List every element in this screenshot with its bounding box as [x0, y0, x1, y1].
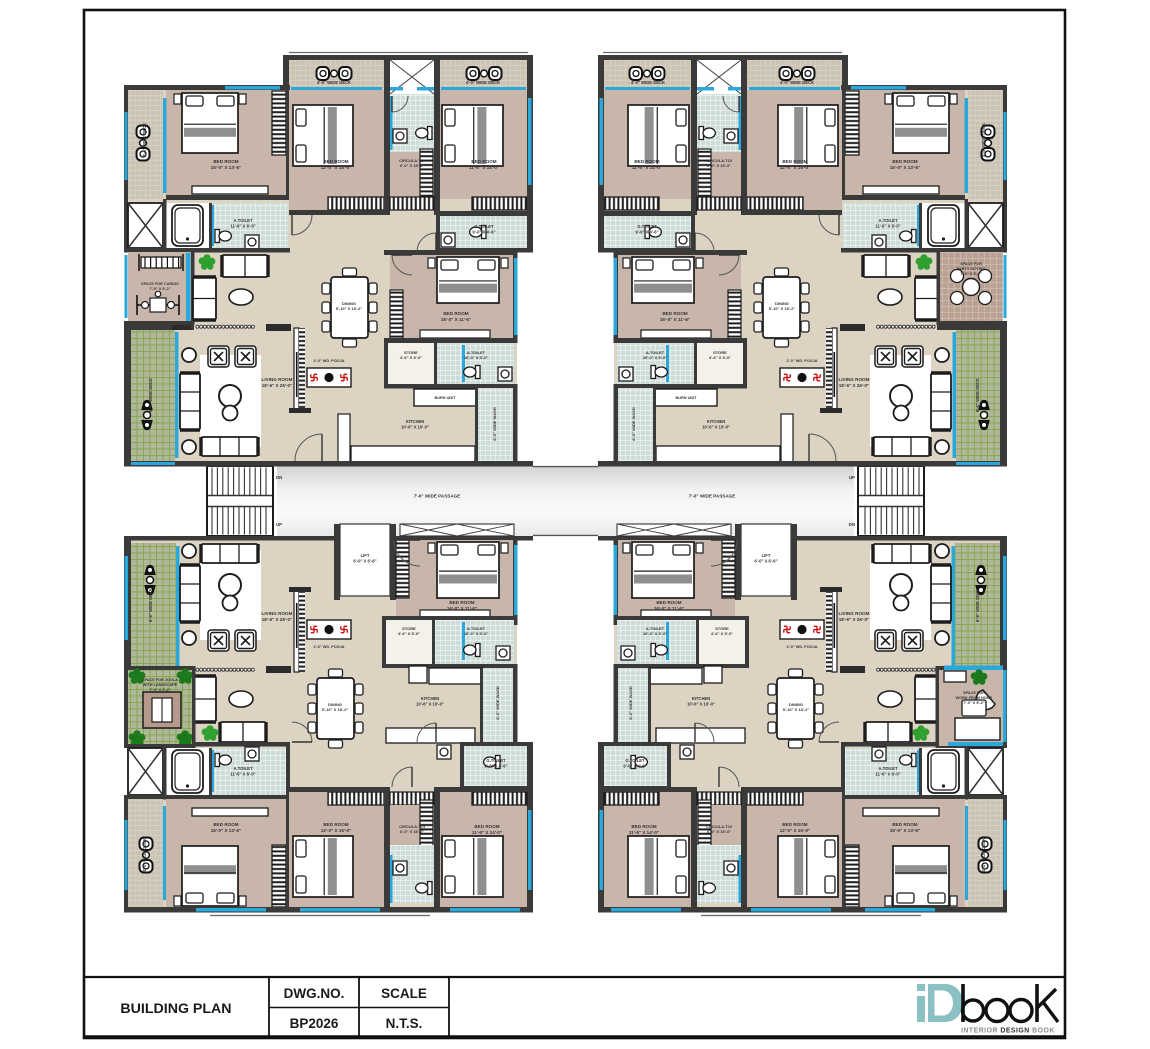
svg-text:A.TOILET10'-0" X 5'-0": A.TOILET10'-0" X 5'-0"	[643, 350, 667, 360]
svg-text:4'-0" WIDE DECK: 4'-0" WIDE DECK	[780, 80, 814, 85]
svg-text:7'-6" WIDE PASSAGE: 7'-6" WIDE PASSAGE	[414, 494, 461, 499]
svg-text:4'-0" WIDE DECK: 4'-0" WIDE DECK	[631, 80, 665, 85]
svg-text:A.TOILET11'-6" X 6'-0": A.TOILET11'-6" X 6'-0"	[875, 218, 900, 228]
svg-text:4'-4" WIDE DECK: 4'-4" WIDE DECK	[142, 123, 147, 157]
svg-text:G.TOILET9'-0" X 4'-6": G.TOILET9'-0" X 4'-6"	[472, 224, 495, 234]
svg-text:BURN UNIT: BURN UNIT	[435, 396, 457, 400]
svg-text:BED ROOM12'-0" X 15'-0": BED ROOM12'-0" X 15'-0"	[321, 159, 352, 170]
svg-text:UP: UP	[849, 475, 855, 480]
svg-text:G.TOILET9'-0" X 4'-6": G.TOILET9'-0" X 4'-6"	[484, 758, 507, 768]
svg-text:6'-0" WIDE WASH: 6'-0" WIDE WASH	[492, 407, 497, 440]
svg-text:SPACE FORPARTY SITTING7'-9" X: SPACE FORPARTY SITTING7'-9" X 9'-2"	[957, 262, 986, 276]
svg-text:BED ROOM11'-6" X 14'-0": BED ROOM11'-6" X 14'-0"	[632, 159, 662, 170]
svg-text:BED ROOM15'-0" X 13'-6": BED ROOM15'-0" X 13'-6"	[211, 159, 242, 170]
svg-text:BED ROOM11'-6" X 14'-0": BED ROOM11'-6" X 14'-0"	[469, 159, 499, 170]
svg-text:A.TOILET11'-6" X 6'-0": A.TOILET11'-6" X 6'-0"	[230, 218, 255, 228]
svg-text:INTERIOR DESIGN BOOK: INTERIOR DESIGN BOOK	[961, 1028, 1055, 1035]
svg-text:G.TOILET9'-0" X 4'-6": G.TOILET9'-0" X 4'-6"	[623, 758, 646, 768]
svg-text:BED ROOM12'-0" X 15'-0": BED ROOM12'-0" X 15'-0"	[780, 822, 811, 833]
svg-text:BED ROOM16'-0" X 11'-6": BED ROOM16'-0" X 11'-6"	[654, 600, 684, 611]
svg-text:6'-6" WIDE DECK: 6'-6" WIDE DECK	[148, 588, 153, 622]
svg-text:CIRCULA.TOI6'-0" X 15'-0": CIRCULA.TOI6'-0" X 15'-0"	[399, 158, 425, 168]
svg-text:4'-4" WIDE DECK: 4'-4" WIDE DECK	[142, 838, 147, 872]
svg-text:A.TOILET10'-0" X 5'-0": A.TOILET10'-0" X 5'-0"	[464, 626, 488, 636]
svg-text:LIVING ROOM18'-6" X 26'-0": LIVING ROOM18'-6" X 26'-0"	[262, 611, 293, 622]
svg-text:LIVING ROOM18'-6" X 26'-0": LIVING ROOM18'-6" X 26'-0"	[839, 611, 870, 622]
svg-text:BURN UNIT: BURN UNIT	[676, 396, 698, 400]
svg-text:6'-0" WIDE WASH: 6'-0" WIDE WASH	[495, 686, 500, 719]
svg-text:BED ROOM12'-0" X 15'-0": BED ROOM12'-0" X 15'-0"	[780, 159, 811, 170]
svg-text:LIVING ROOM18'-6" X 26'-0": LIVING ROOM18'-6" X 26'-0"	[262, 377, 293, 388]
svg-text:LIVING ROOM18'-6" X 26'-0": LIVING ROOM18'-6" X 26'-0"	[839, 377, 870, 388]
svg-text:2'-0" WD. POOJA: 2'-0" WD. POOJA	[787, 645, 818, 649]
svg-text:BED ROOM16'-0" X 11'-6": BED ROOM16'-0" X 11'-6"	[441, 311, 471, 322]
svg-text:N.T.S.: N.T.S.	[386, 1016, 423, 1031]
svg-text:BED ROOM16'-0" X 11'-6": BED ROOM16'-0" X 11'-6"	[660, 311, 690, 322]
svg-text:2'-0" WD. POOJA: 2'-0" WD. POOJA	[787, 359, 818, 363]
svg-text:6'-6" WIDE DECK: 6'-6" WIDE DECK	[975, 588, 980, 622]
svg-text:6'-6" WIDE DECK: 6'-6" WIDE DECK	[148, 378, 153, 412]
svg-text:BUILDING PLAN: BUILDING PLAN	[120, 1001, 231, 1017]
svg-text:DN: DN	[849, 522, 855, 527]
svg-text:DWG.NO.: DWG.NO.	[284, 986, 345, 1001]
svg-text:A.TOILET11'-6" X 6'-0": A.TOILET11'-6" X 6'-0"	[230, 766, 255, 776]
svg-text:A.TOILET10'-0" X 5'-0": A.TOILET10'-0" X 5'-0"	[464, 350, 488, 360]
svg-text:BED ROOM15'-0" X 13'-6": BED ROOM15'-0" X 13'-6"	[211, 822, 242, 833]
svg-text:4'-4" WIDE DECK: 4'-4" WIDE DECK	[981, 838, 986, 872]
svg-text:G.TOILET9'-0" X 4'-6": G.TOILET9'-0" X 4'-6"	[635, 224, 658, 234]
svg-text:UP: UP	[276, 522, 282, 527]
svg-text:6'-6" WIDE DECK: 6'-6" WIDE DECK	[975, 378, 980, 412]
svg-text:2'-0" WD. POOJA: 2'-0" WD. POOJA	[314, 645, 345, 649]
svg-text:BED ROOM11'-6" X 14'-0": BED ROOM11'-6" X 14'-0"	[472, 824, 502, 835]
svg-text:BP2026: BP2026	[290, 1016, 339, 1031]
svg-text:6'-0" WIDE WASH: 6'-0" WIDE WASH	[631, 407, 636, 440]
svg-text:DN: DN	[276, 475, 282, 480]
svg-text:4'-0" WIDE DECK: 4'-0" WIDE DECK	[317, 80, 351, 85]
svg-text:6'-0" WIDE WASH: 6'-0" WIDE WASH	[628, 686, 633, 719]
svg-text:BED ROOM12'-0" X 15'-0": BED ROOM12'-0" X 15'-0"	[321, 822, 352, 833]
svg-text:BED ROOM15'-0" X 13'-6": BED ROOM15'-0" X 13'-6"	[890, 159, 921, 170]
svg-text:7'-6" WIDE PASSAGE: 7'-6" WIDE PASSAGE	[689, 494, 736, 499]
svg-text:SCALE: SCALE	[381, 986, 427, 1001]
svg-text:4'-4" WIDE DECK: 4'-4" WIDE DECK	[981, 123, 986, 157]
svg-text:CIRCULA.TOI6'-0" X 15'-0": CIRCULA.TOI6'-0" X 15'-0"	[399, 824, 425, 834]
svg-text:A.TOILET11'-6" X 6'-0": A.TOILET11'-6" X 6'-0"	[875, 766, 900, 776]
svg-text:BED ROOM15'-0" X 13'-6": BED ROOM15'-0" X 13'-6"	[890, 822, 921, 833]
svg-text:BED ROOM16'-0" X 11'-6": BED ROOM16'-0" X 11'-6"	[447, 600, 477, 611]
svg-text:2'-0" WD. POOJA: 2'-0" WD. POOJA	[314, 359, 345, 363]
svg-text:A.TOILET10'-0" X 5'-0": A.TOILET10'-0" X 5'-0"	[643, 626, 667, 636]
svg-text:4'-0" WIDE DECK: 4'-0" WIDE DECK	[466, 80, 500, 85]
svg-text:CIRCULA.TOI6'-0" X 15'-0": CIRCULA.TOI6'-0" X 15'-0"	[706, 158, 732, 168]
svg-text:CIRCULA.TOI6'-0" X 15'-0": CIRCULA.TOI6'-0" X 15'-0"	[706, 824, 732, 834]
svg-text:BED ROOM11'-6" X 14'-0": BED ROOM11'-6" X 14'-0"	[629, 824, 659, 835]
